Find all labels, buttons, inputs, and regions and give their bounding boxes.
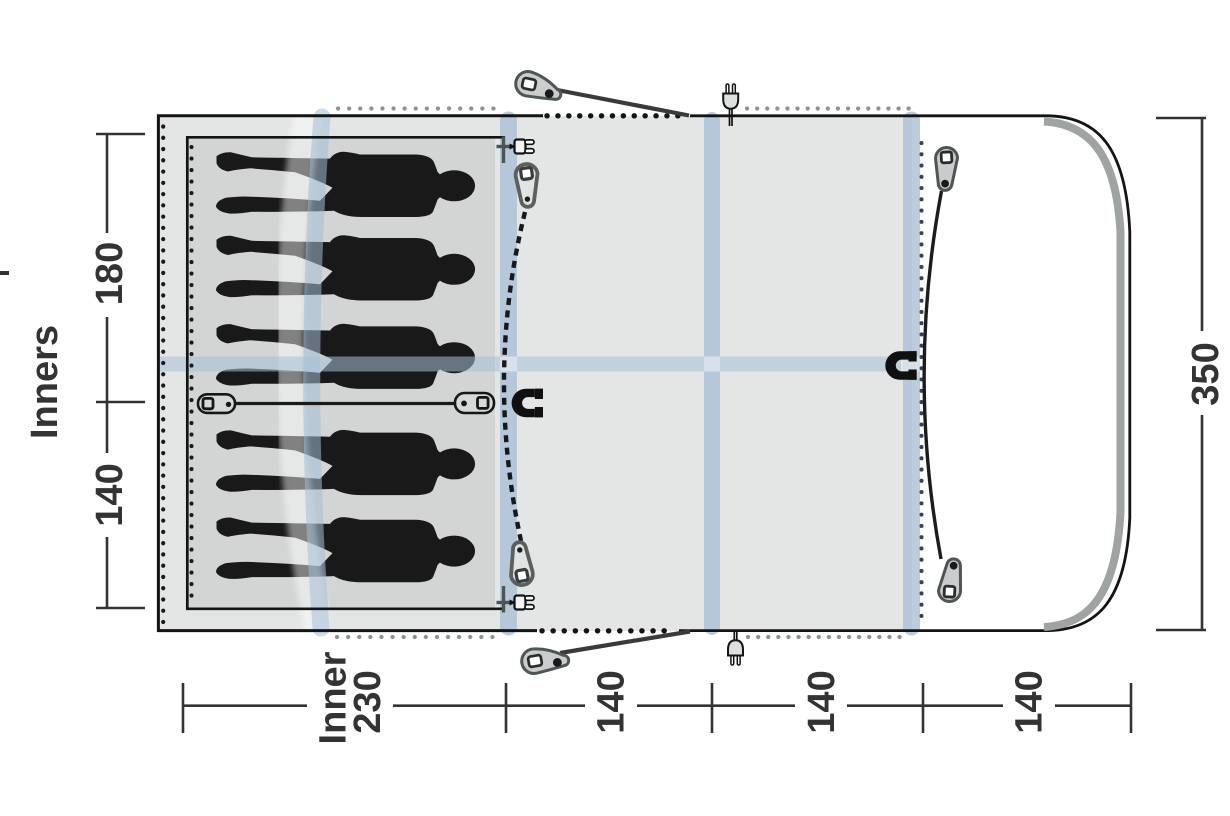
svg-text:230: 230	[347, 670, 389, 733]
svg-text:180: 180	[89, 242, 131, 305]
svg-text:140: 140	[591, 670, 633, 733]
svg-text:140: 140	[801, 670, 843, 733]
svg-text:140: 140	[89, 463, 131, 526]
svg-text:140: 140	[1009, 670, 1051, 733]
svg-text:350: 350	[1185, 342, 1227, 405]
svg-text:Inners: Inners	[24, 325, 66, 439]
